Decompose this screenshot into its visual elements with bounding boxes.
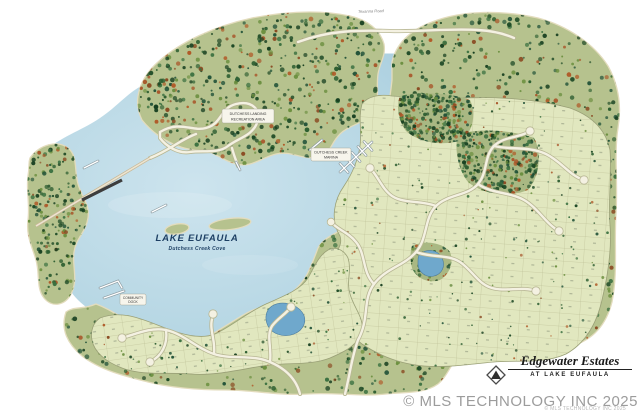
- svg-text:RECREATION AREA: RECREATION AREA: [231, 118, 265, 122]
- development-name: Edgewater Estates: [500, 354, 640, 368]
- lake-label: LAKE EUFAULA: [156, 233, 239, 244]
- water-highlight: [108, 192, 232, 218]
- recreation-area-label: DUTCHESS LANDING RECREATION AREA: [222, 109, 274, 123]
- svg-text:DUTCHESS CREEK: DUTCHESS CREEK: [314, 151, 348, 155]
- svg-text:DUTCHESS LANDING: DUTCHESS LANDING: [230, 112, 267, 116]
- svg-text:MARINA: MARINA: [324, 156, 339, 160]
- title-block: Edgewater Estates AT LAKE EUFAULA: [500, 354, 640, 378]
- plat-map: LAKE EUFAULA Dutchess Creek Cove DUTCHES…: [0, 0, 640, 412]
- map-canvas: LAKE EUFAULA Dutchess Creek Cove DUTCHES…: [0, 0, 640, 412]
- marina-label: DUTCHESS CREEK MARINA: [311, 148, 351, 161]
- svg-text:COMMUNITY: COMMUNITY: [123, 296, 144, 300]
- cove-label: Dutchess Creek Cove: [168, 246, 225, 252]
- development-subtitle: AT LAKE EUFAULA: [500, 372, 640, 378]
- mls-watermark-small: © MLS TECHNOLOGY INC 2025: [544, 406, 626, 412]
- road-label: Texanna Road: [358, 8, 385, 14]
- community-dock-label: COMMUNITY DOCK: [120, 294, 146, 305]
- water-highlight: [202, 255, 298, 275]
- svg-text:DOCK: DOCK: [128, 300, 138, 304]
- title-rule: [508, 369, 632, 370]
